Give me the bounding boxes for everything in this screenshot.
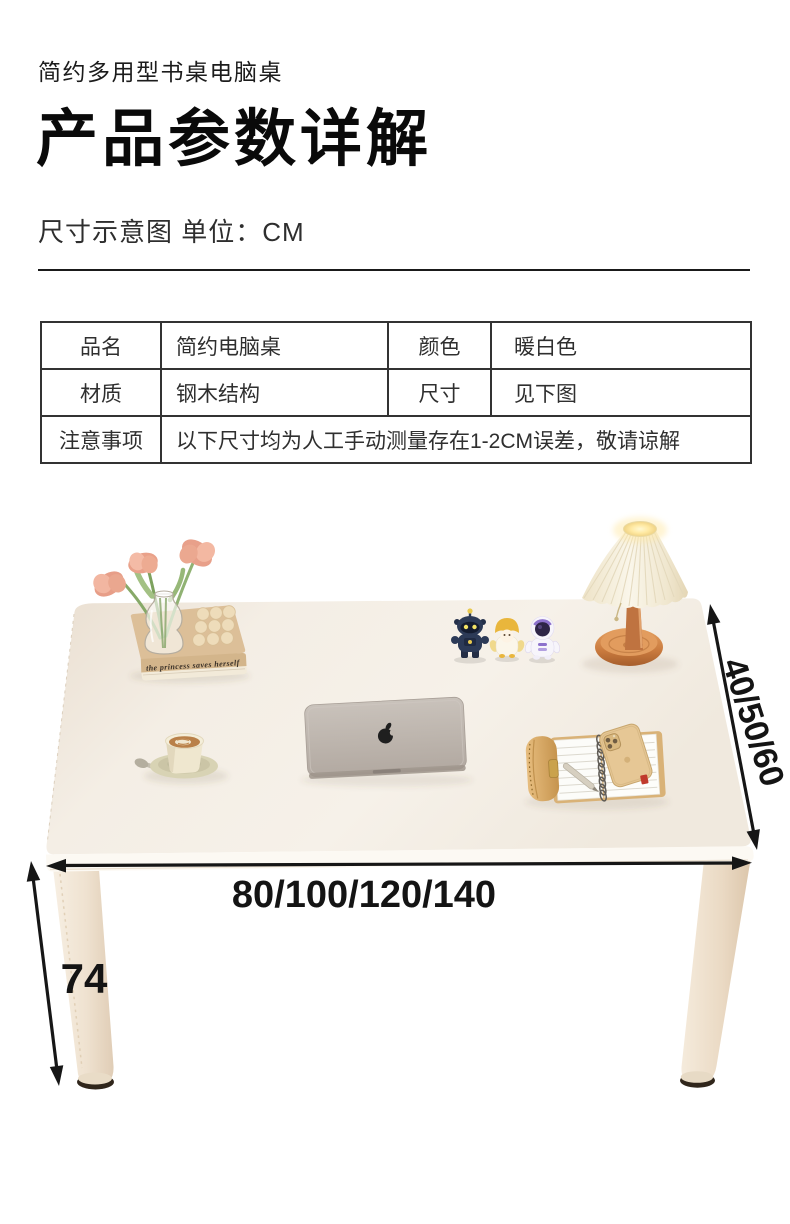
product-line-title: 简约多用型书桌电脑桌 (38, 53, 283, 87)
size-diagram-subtitle: 尺寸示意图 单位：CM (38, 212, 305, 249)
size-diagram: the princess saves herself (0, 480, 790, 1224)
spec-key-notes: 注意事项 (41, 416, 161, 463)
desk-leg-right (680, 860, 751, 1088)
page-title: 产品参数详解 (36, 106, 432, 174)
spec-key-material: 材质 (41, 369, 161, 416)
product-detail-page: 简约多用型书桌电脑桌 产品参数详解 尺寸示意图 单位：CM 品名 简约电脑桌 颜… (0, 0, 790, 1224)
table-row: 品名 简约电脑桌 颜色 暖白色 (41, 322, 751, 369)
bead-decor (193, 606, 236, 647)
height-dimension-label: 74 (61, 955, 108, 1002)
spec-value-material: 钢木结构 (161, 369, 388, 416)
table-row: 材质 钢木结构 尺寸 见下图 (41, 369, 751, 416)
spec-value-color: 暖白色 (491, 322, 751, 369)
spec-value-notes: 以下尺寸均为人工手动测量存在1-2CM误差，敬请谅解 (161, 416, 751, 463)
spec-key-name: 品名 (41, 322, 161, 369)
divider-line (38, 269, 750, 271)
spec-key-size: 尺寸 (388, 369, 491, 416)
lamp-bulb-glow (624, 522, 657, 537)
spec-value-size: 见下图 (491, 369, 751, 416)
spec-value-name: 简约电脑桌 (161, 322, 388, 369)
desk-illustration: the princess saves herself (0, 480, 790, 1224)
spec-key-color: 颜色 (388, 322, 491, 369)
table-row: 注意事项 以下尺寸均为人工手动测量存在1-2CM误差，敬请谅解 (41, 416, 751, 463)
width-dimension-label: 80/100/120/140 (232, 874, 496, 916)
spec-table: 品名 简约电脑桌 颜色 暖白色 材质 钢木结构 尺寸 见下图 注意事项 以下尺寸… (40, 321, 752, 464)
